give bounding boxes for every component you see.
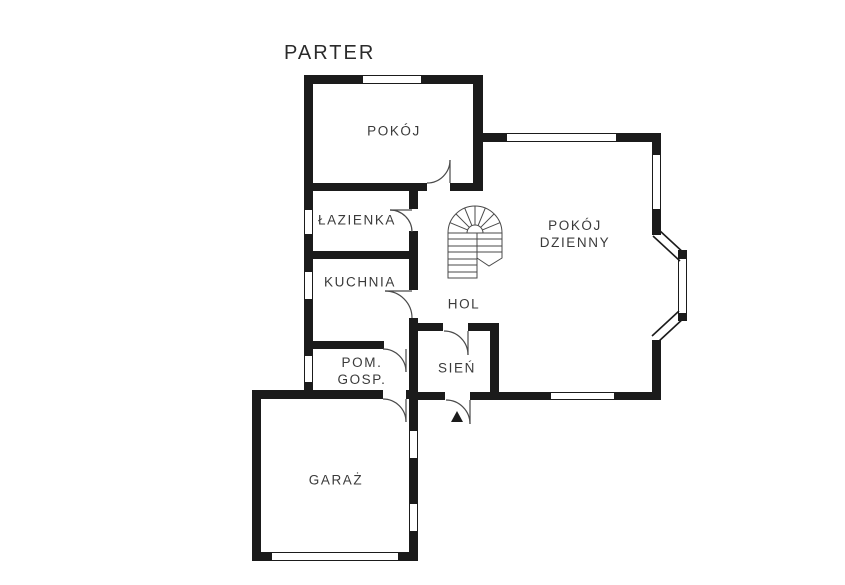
room-label-lazienka: ŁAZIENKA — [318, 212, 396, 229]
window — [507, 133, 616, 142]
room-label-pom-gosp-line2: GOSP. — [337, 371, 386, 388]
wall-segment — [252, 390, 383, 399]
window — [678, 259, 687, 313]
room-label-pom-gosp: POM. GOSP. — [337, 354, 386, 388]
garage-door-opening — [272, 552, 398, 561]
wall-segment — [252, 390, 261, 561]
room-label-pom-gosp-line1: POM. — [337, 354, 386, 371]
plan-linework — [0, 0, 845, 585]
wall-segment — [304, 299, 313, 356]
entrance-arrow-icon — [451, 411, 463, 422]
wall-segment — [409, 458, 418, 504]
room-label-pokoj-dzienny-line1: POKÓJ — [540, 217, 610, 234]
wall-segment — [306, 75, 363, 84]
window — [409, 431, 418, 458]
window — [304, 356, 313, 382]
wall-segment — [306, 251, 418, 259]
room-label-hol: HOL — [448, 296, 481, 313]
wall-segment — [678, 313, 687, 321]
wall-segment — [409, 400, 418, 431]
wall-segment — [652, 209, 661, 235]
wall-segment — [398, 552, 418, 561]
wall-segment — [470, 392, 551, 400]
window — [409, 504, 418, 531]
wall-segment — [421, 75, 478, 84]
wall-segment — [304, 234, 313, 272]
wall-segment — [304, 382, 313, 399]
window — [304, 272, 313, 299]
door-swing-garage — [383, 399, 406, 422]
door-swing-entrance — [446, 400, 470, 424]
wall-segment — [409, 231, 418, 290]
wall-segment — [306, 341, 384, 349]
window — [652, 155, 661, 209]
room-label-pokoj-dzienny-line2: DZIENNY — [540, 234, 610, 251]
room-label-sien: SIEŃ — [438, 360, 476, 377]
door-swing-pokoj — [427, 160, 450, 183]
wall-segment — [409, 318, 418, 400]
door-swing-kuchnia — [385, 291, 412, 318]
wall-segment — [473, 75, 483, 191]
wall-segment — [409, 183, 418, 209]
room-label-pokoj-dzienny: POKÓJ DZIENNY — [540, 217, 610, 251]
room-label-kuchnia: KUCHNIA — [324, 274, 396, 291]
plan-title: PARTER — [284, 42, 375, 65]
staircase — [448, 206, 502, 278]
floor-plan: PARTER — [0, 0, 845, 585]
wall-segment — [652, 340, 661, 400]
wall-segment — [304, 75, 313, 210]
room-label-garaz: GARAŻ — [309, 472, 364, 489]
window — [551, 392, 614, 400]
room-label-pokoj: POKÓJ — [367, 123, 421, 140]
window — [304, 210, 313, 234]
wall-segment — [490, 323, 499, 400]
wall-segment — [652, 133, 661, 155]
window — [363, 75, 421, 84]
wall-segment — [678, 250, 687, 259]
wall-segment — [409, 531, 418, 552]
door-swing-sien — [444, 331, 468, 355]
